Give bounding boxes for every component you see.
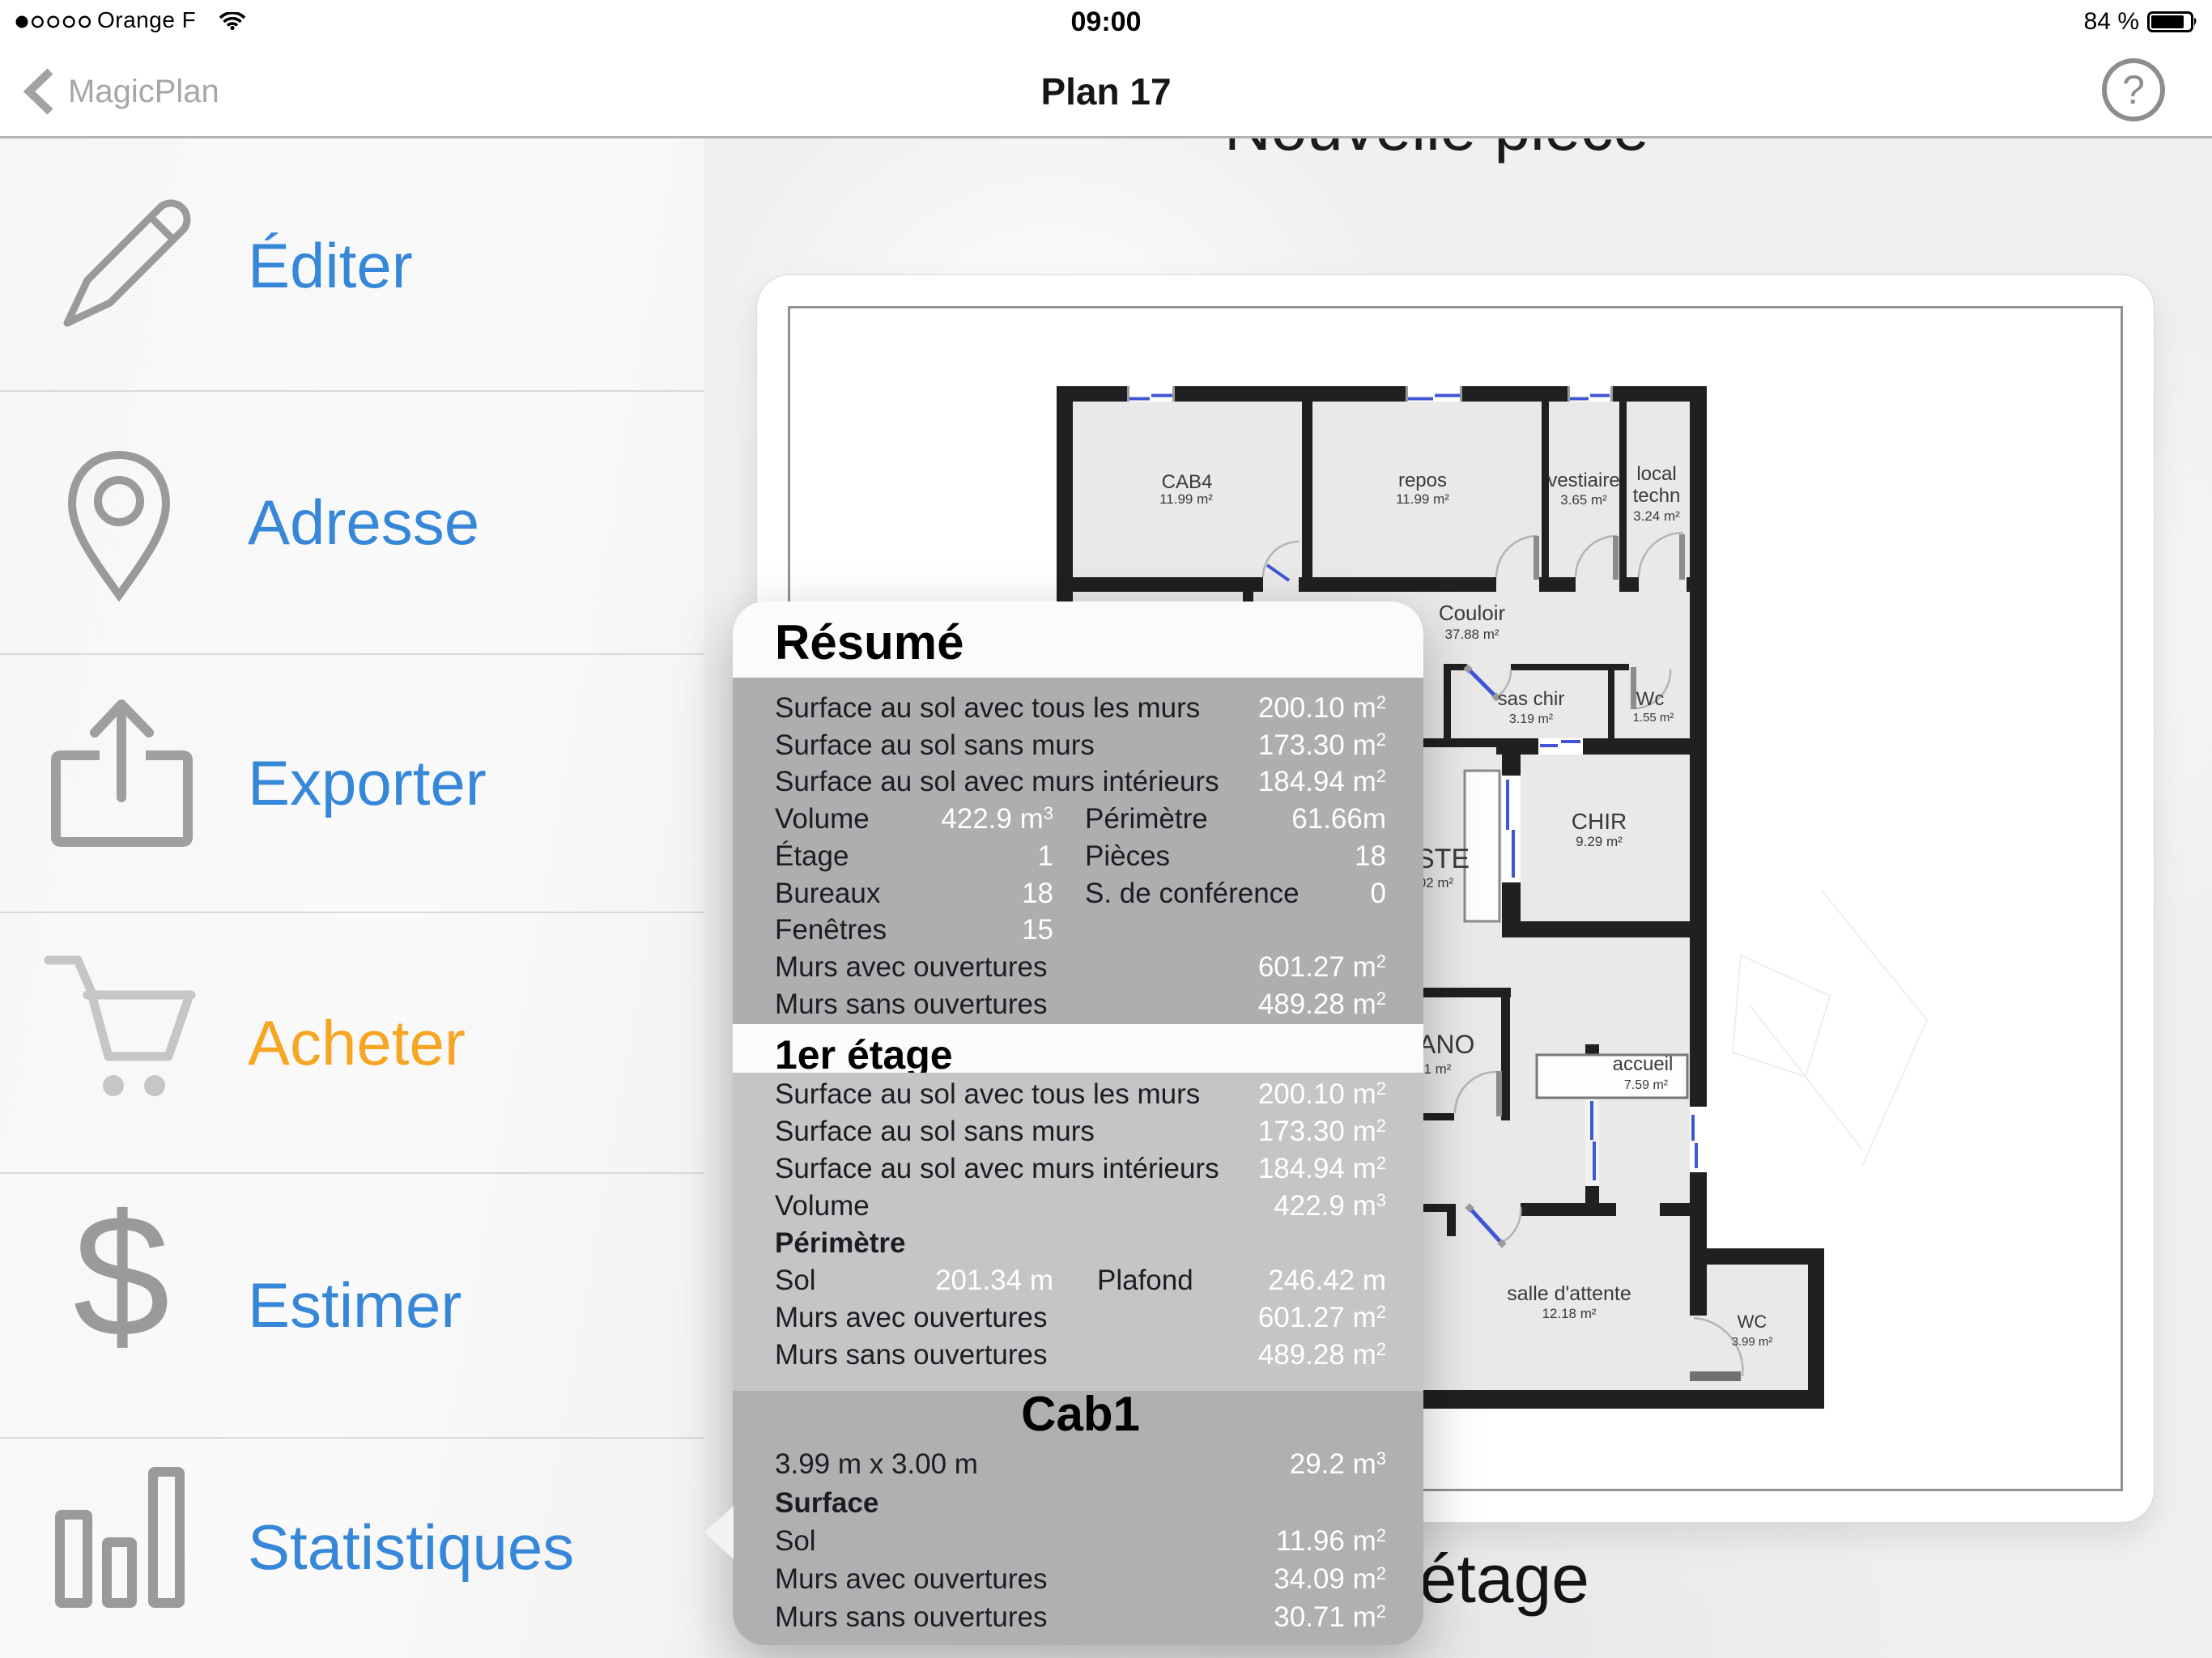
svg-text:7.59 m²: 7.59 m² xyxy=(1624,1078,1669,1092)
svg-text:11.99 m²: 11.99 m² xyxy=(1396,491,1449,507)
svg-text:ANO: ANO xyxy=(1419,1030,1474,1059)
svg-text:CAB4: CAB4 xyxy=(1162,471,1213,493)
svg-text:?: ? xyxy=(2122,67,2145,113)
svg-text:3.19 m²: 3.19 m² xyxy=(1509,712,1554,726)
svg-text:repos: repos xyxy=(1398,470,1447,491)
svg-text:11.99 m²: 11.99 m² xyxy=(1159,491,1213,507)
svg-text:Wc: Wc xyxy=(1636,688,1665,710)
svg-text:techn: techn xyxy=(1633,485,1681,507)
svg-text:WC: WC xyxy=(1738,1312,1767,1332)
svg-text:vestiaire: vestiaire xyxy=(1547,470,1619,491)
svg-text:3.99 m²: 3.99 m² xyxy=(1732,1335,1773,1349)
svg-text:accueil: accueil xyxy=(1613,1053,1674,1075)
svg-text:STE: STE xyxy=(1416,844,1470,874)
svg-text:sas chir: sas chir xyxy=(1498,688,1565,710)
svg-text:1.55 m²: 1.55 m² xyxy=(1633,711,1674,725)
svg-text:salle d'attente: salle d'attente xyxy=(1507,1282,1631,1305)
svg-text:CHIR: CHIR xyxy=(1572,809,1627,834)
svg-text:$: $ xyxy=(73,1178,170,1373)
svg-text:local: local xyxy=(1636,463,1676,485)
svg-text:12.18 m²: 12.18 m² xyxy=(1542,1306,1596,1321)
svg-text:Couloir: Couloir xyxy=(1439,601,1506,625)
svg-text:3.65 m²: 3.65 m² xyxy=(1560,492,1607,508)
svg-text:37.88 m²: 37.88 m² xyxy=(1444,627,1499,642)
svg-text:9.29 m²: 9.29 m² xyxy=(1576,834,1623,849)
svg-text:3.24 m²: 3.24 m² xyxy=(1633,508,1680,524)
